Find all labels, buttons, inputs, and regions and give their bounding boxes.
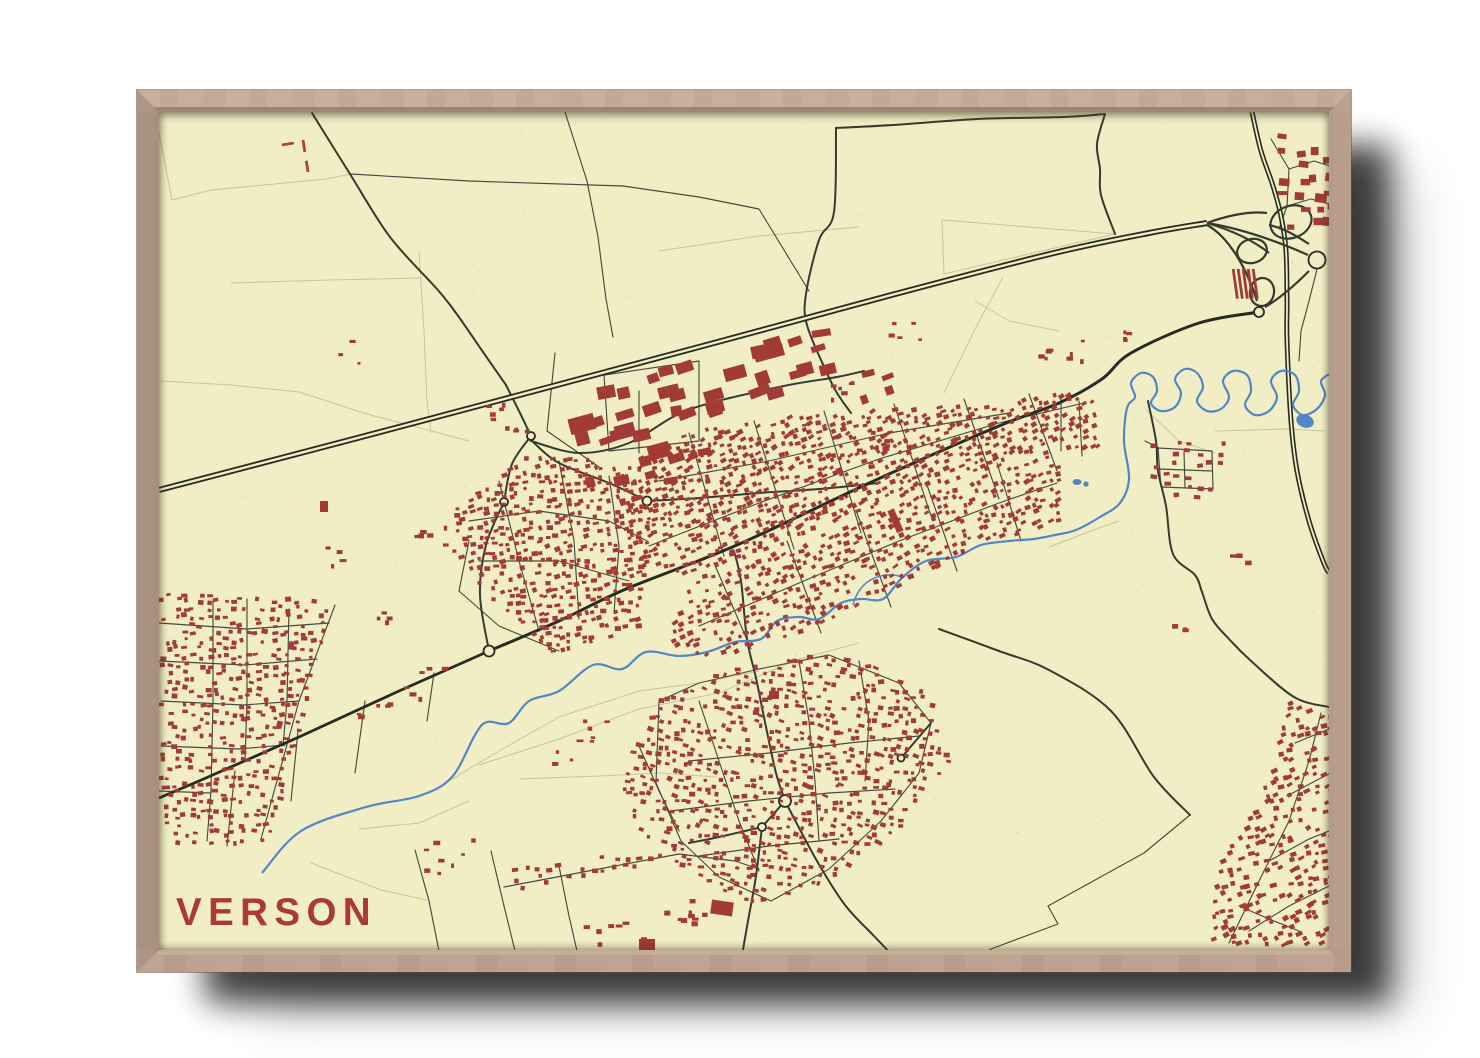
svg-text:VERSON: VERSON: [176, 891, 377, 934]
